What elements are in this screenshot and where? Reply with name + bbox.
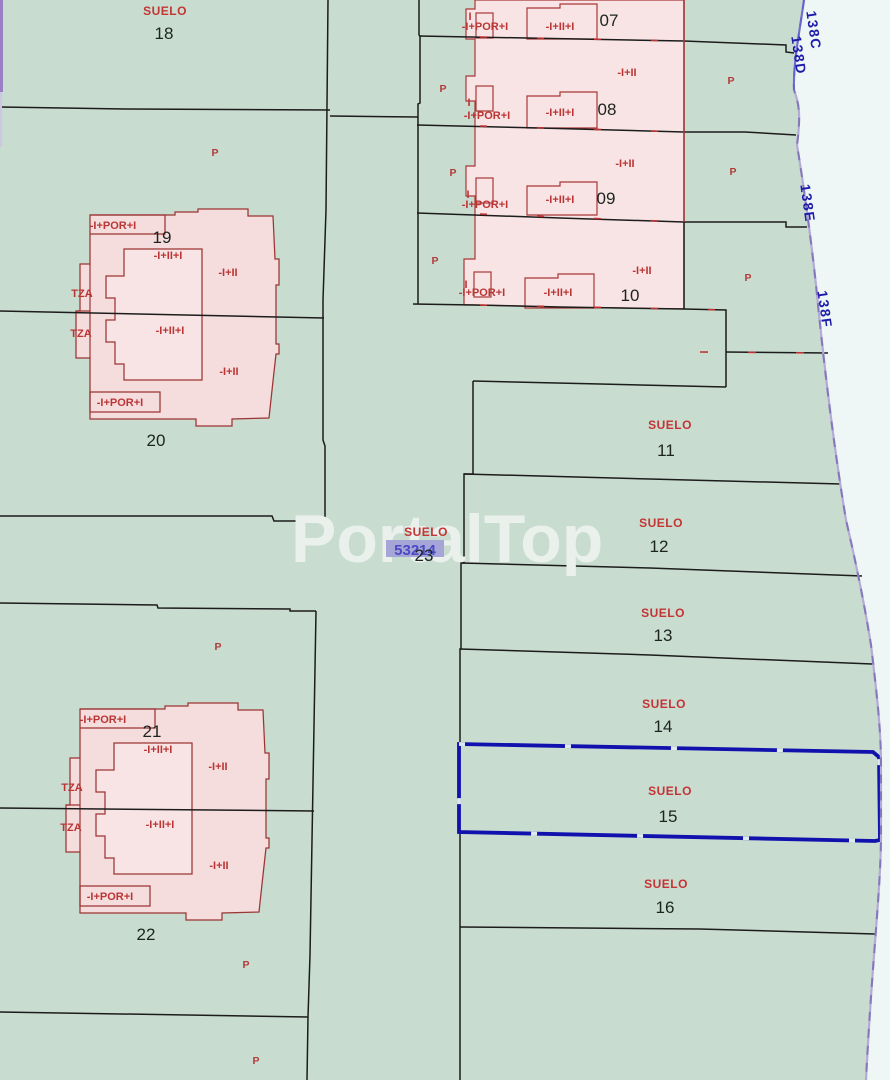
- svg-text:I: I: [464, 279, 467, 291]
- svg-text:-I+II+I: -I+II+I: [154, 250, 183, 262]
- svg-text:P: P: [252, 1055, 259, 1067]
- svg-text:-I+II: -I+II: [208, 761, 227, 773]
- svg-text:TZA: TZA: [71, 288, 92, 300]
- svg-text:19: 19: [153, 228, 172, 247]
- svg-text:SUELO: SUELO: [644, 877, 688, 891]
- svg-text:TZA: TZA: [61, 782, 82, 794]
- svg-text:14: 14: [654, 717, 673, 736]
- svg-text:08: 08: [598, 100, 617, 119]
- svg-text:SUELO: SUELO: [641, 606, 685, 620]
- svg-text:-I+II+I: -I+II+I: [546, 194, 575, 206]
- svg-text:TZA: TZA: [70, 328, 91, 340]
- svg-text:18: 18: [155, 24, 174, 43]
- svg-text:P: P: [744, 272, 751, 284]
- svg-text:P: P: [729, 166, 736, 178]
- svg-text:-I+II: -I+II: [218, 267, 237, 279]
- svg-text:-I+II: -I+II: [219, 366, 238, 378]
- svg-text:-I+II: -I+II: [632, 265, 651, 277]
- svg-text:15: 15: [659, 807, 678, 826]
- svg-text:SUELO: SUELO: [639, 516, 683, 530]
- svg-text:SUELO: SUELO: [648, 784, 692, 798]
- svg-text:10: 10: [621, 286, 640, 305]
- svg-text:P: P: [431, 255, 438, 267]
- svg-text:-I+POR+I: -I+POR+I: [80, 714, 126, 726]
- svg-text:20: 20: [147, 431, 166, 450]
- svg-text:P: P: [449, 167, 456, 179]
- svg-text:-I+POR+I: -I+POR+I: [97, 397, 143, 409]
- svg-text:22: 22: [137, 925, 156, 944]
- svg-text:I: I: [467, 97, 470, 109]
- svg-text:-I+POR+I: -I+POR+I: [90, 220, 136, 232]
- svg-text:16: 16: [656, 898, 675, 917]
- svg-text:P: P: [439, 83, 446, 95]
- svg-text:-I+II+I: -I+II+I: [144, 744, 173, 756]
- svg-text:P: P: [242, 959, 249, 971]
- svg-text:-I+II+I: -I+II+I: [546, 107, 575, 119]
- svg-text:TZA: TZA: [60, 822, 81, 834]
- svg-text:P: P: [211, 147, 218, 159]
- svg-text:07: 07: [600, 11, 619, 30]
- svg-text:-I+POR+I: -I+POR+I: [87, 891, 133, 903]
- svg-text:I: I: [466, 189, 469, 201]
- svg-text:-I+II+I: -I+II+I: [156, 325, 185, 337]
- svg-text:-I+II: -I+II: [617, 67, 636, 79]
- svg-text:-I+II+I: -I+II+I: [544, 287, 573, 299]
- svg-text:SUELO: SUELO: [648, 418, 692, 432]
- svg-text:23: 23: [415, 546, 434, 565]
- svg-text:21: 21: [143, 722, 162, 741]
- svg-text:PortalTop: PortalTop: [291, 501, 603, 577]
- svg-text:P: P: [214, 641, 221, 653]
- svg-text:-I+II+I: -I+II+I: [546, 21, 575, 33]
- svg-text:-I+POR+I: -I+POR+I: [464, 110, 510, 122]
- svg-text:SUELO: SUELO: [404, 525, 448, 539]
- svg-text:-I+II+I: -I+II+I: [146, 819, 175, 831]
- svg-text:-I+II: -I+II: [209, 860, 228, 872]
- svg-text:P: P: [727, 75, 734, 87]
- svg-text:09: 09: [597, 189, 616, 208]
- svg-text:I: I: [468, 11, 471, 23]
- svg-text:-I+II: -I+II: [615, 158, 634, 170]
- svg-text:12: 12: [650, 537, 669, 556]
- svg-text:13: 13: [654, 626, 673, 645]
- svg-text:11: 11: [657, 441, 675, 460]
- svg-text:SUELO: SUELO: [642, 697, 686, 711]
- svg-text:SUELO: SUELO: [143, 4, 187, 18]
